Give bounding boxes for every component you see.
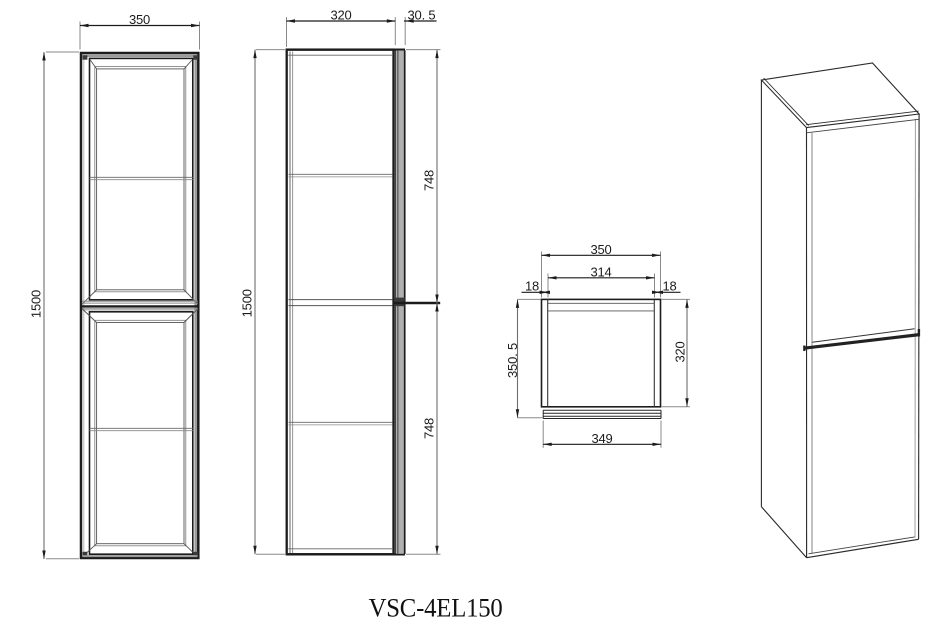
svg-text:VSC-4EL150: VSC-4EL150 bbox=[369, 594, 503, 623]
svg-text:18: 18 bbox=[525, 279, 539, 294]
svg-text:320: 320 bbox=[673, 341, 688, 362]
svg-text:748: 748 bbox=[422, 170, 437, 191]
svg-text:18: 18 bbox=[662, 279, 676, 294]
svg-text:314: 314 bbox=[590, 264, 611, 279]
svg-text:350: 350 bbox=[590, 242, 611, 257]
svg-text:30. 5: 30. 5 bbox=[408, 8, 436, 23]
svg-text:350. 5: 350. 5 bbox=[505, 343, 520, 378]
svg-text:748: 748 bbox=[422, 418, 437, 439]
svg-text:1500: 1500 bbox=[240, 289, 255, 317]
svg-text:350: 350 bbox=[129, 12, 150, 27]
svg-text:349: 349 bbox=[591, 431, 612, 446]
svg-text:1500: 1500 bbox=[29, 290, 44, 318]
svg-text:320: 320 bbox=[330, 8, 351, 23]
